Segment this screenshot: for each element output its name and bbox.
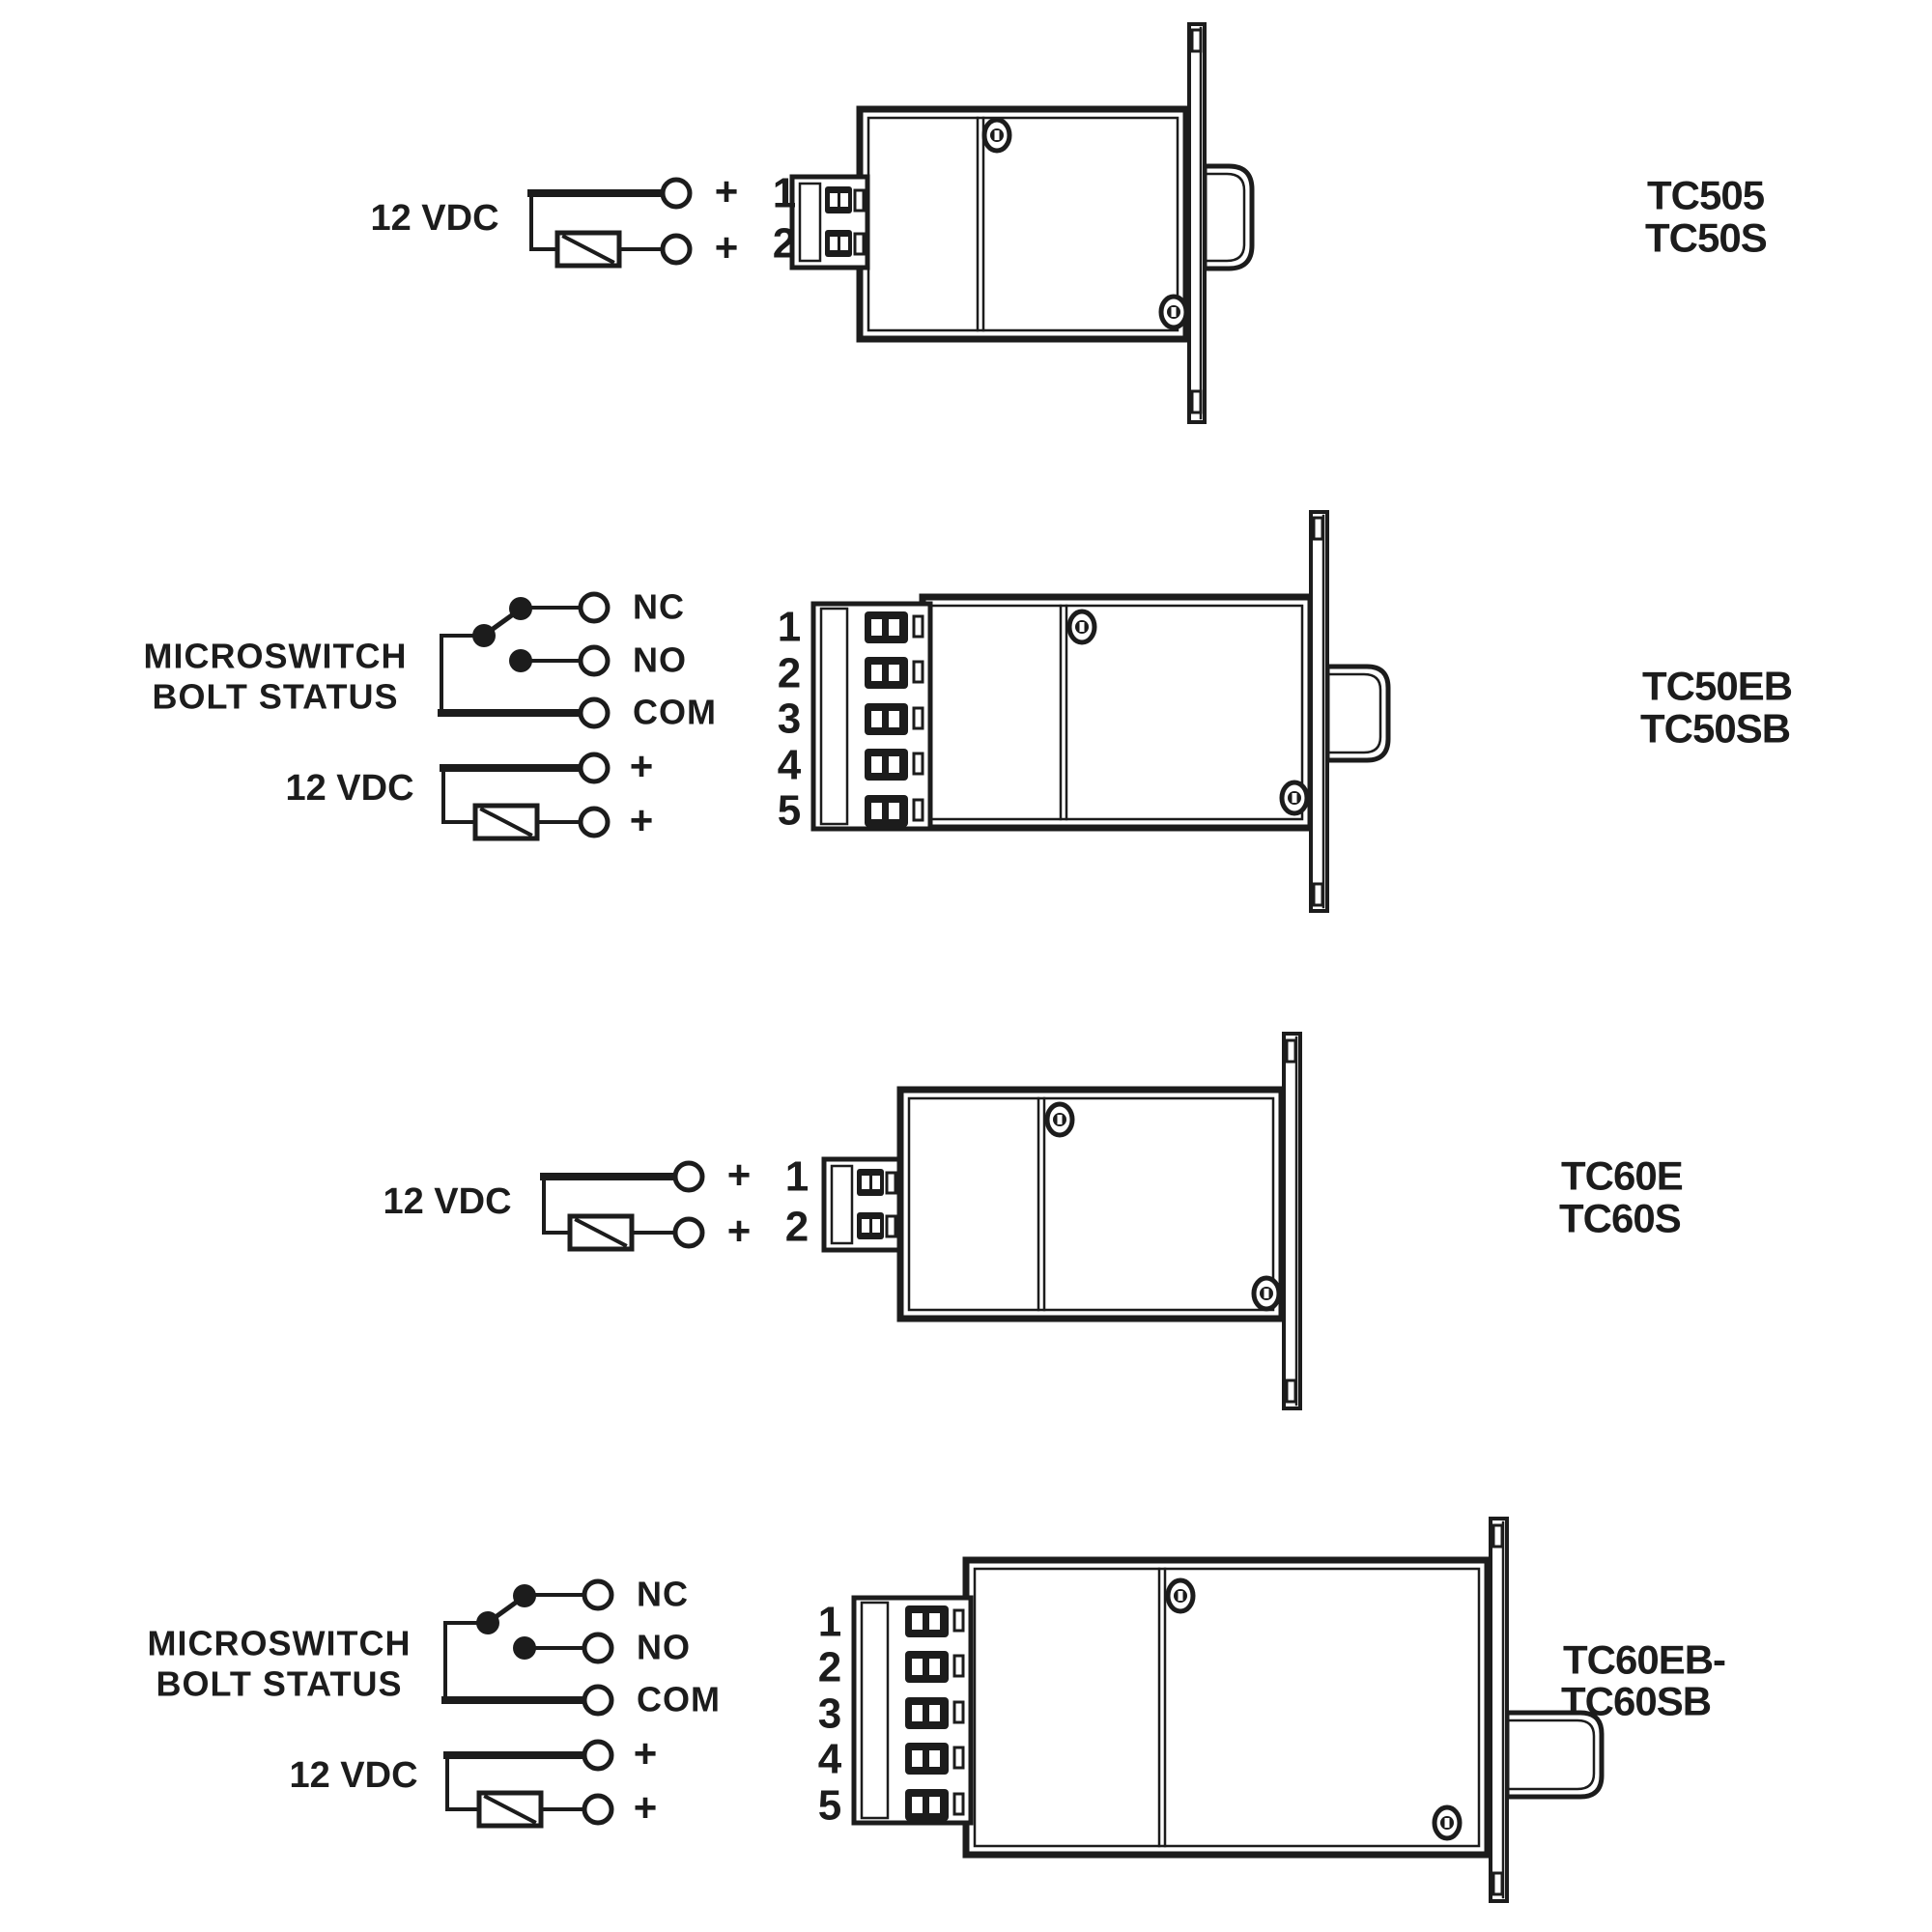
ring-terminal	[584, 1687, 611, 1714]
power-wiring: 12 VDC + + 1 2	[370, 169, 796, 270]
diode-symbol	[557, 233, 619, 266]
ring-terminal	[584, 1581, 611, 1608]
microswitch-wiring: MICROSWITCH BOLT STATUS NC NO COM 12 VDC	[148, 1575, 721, 1831]
screw-icon	[984, 120, 1009, 151]
terminal-number: 1	[773, 170, 796, 217]
mounting-faceplate	[1491, 1519, 1507, 1901]
screw-icon	[1254, 1278, 1279, 1309]
terminal-block	[792, 177, 867, 268]
ring-terminal	[581, 754, 608, 781]
polarity-mark: +	[727, 1152, 752, 1198]
screw-icon	[1161, 297, 1186, 327]
diagram-tc60-bolt-status: 1 2 3 4 5 MICROSWITCH BOLT STATUS NC NO …	[148, 1519, 1726, 1901]
model-label: TC50SB	[1640, 706, 1790, 752]
screw-icon	[1069, 611, 1094, 642]
power-wiring: 12 VDC + + 1 2	[383, 1152, 809, 1254]
lock-device	[966, 1519, 1602, 1901]
polarity-mark: +	[634, 1731, 658, 1776]
switch-terminal-label: NO	[637, 1628, 691, 1667]
switch-terminal-label: COM	[633, 693, 717, 732]
wiring-diagram-sheet: 12 VDC + + 1 2 TC505 TC50S	[0, 0, 1932, 1932]
diagram-tc50-bolt-status: 1 2 3 4 5 MICROSWITCH BOLT STATUS NC NO …	[144, 512, 1793, 911]
polarity-mark: +	[630, 798, 654, 843]
model-labels: TC60E TC60S	[1559, 1153, 1683, 1241]
ring-terminal	[581, 647, 608, 674]
polarity-mark: +	[715, 169, 739, 214]
terminal-number: 1	[785, 1153, 809, 1201]
diode-symbol	[475, 806, 537, 838]
bolt	[1507, 1713, 1602, 1797]
terminal-number: 2	[785, 1204, 809, 1251]
mounting-hole	[1192, 391, 1201, 412]
ring-terminal	[663, 180, 690, 207]
ring-terminal	[663, 236, 690, 263]
model-label: TC60EB-	[1563, 1637, 1725, 1683]
model-labels: TC60EB- TC60SB	[1561, 1637, 1725, 1724]
lock-device	[860, 24, 1252, 422]
mounting-hole	[1493, 1525, 1502, 1547]
bolt-status-label: BOLT STATUS	[156, 1664, 403, 1704]
device-body	[900, 1090, 1282, 1319]
diagram-tc50-standard: 12 VDC + + 1 2 TC505 TC50S	[370, 24, 1766, 422]
ring-terminal	[675, 1219, 702, 1246]
switch-terminal-label: COM	[637, 1680, 721, 1719]
switch-pivot-contact	[472, 624, 496, 647]
terminal-numbers: 1 2 3 4 5	[778, 604, 802, 835]
switch-terminal-label: NC	[633, 587, 685, 627]
terminal-number: 5	[818, 1782, 841, 1830]
bolt-status-label: BOLT STATUS	[153, 677, 399, 717]
polarity-mark: +	[630, 744, 654, 789]
power-voltage-label: 12 VDC	[370, 198, 498, 239]
ring-terminal	[675, 1163, 702, 1190]
diode-symbol	[479, 1793, 541, 1826]
terminal-number: 3	[778, 696, 801, 743]
bolt	[1205, 166, 1252, 269]
ring-terminal	[584, 1634, 611, 1662]
bolt	[1327, 667, 1388, 760]
terminal-number: 2	[778, 650, 801, 697]
mounting-faceplate	[1284, 1034, 1300, 1408]
polarity-mark: +	[634, 1785, 658, 1831]
model-labels: TC50EB TC50SB	[1640, 664, 1792, 752]
terminal-number: 1	[818, 1599, 841, 1646]
ring-terminal	[584, 1742, 611, 1769]
screw-icon	[1047, 1104, 1072, 1135]
model-label: TC50EB	[1642, 664, 1792, 709]
terminal-number: 1	[778, 604, 801, 651]
terminal-block	[854, 1598, 971, 1823]
ring-terminal	[581, 594, 608, 621]
switch-terminal-label: NO	[633, 640, 687, 680]
screw-icon	[1282, 782, 1307, 813]
switch-terminal-label: NC	[637, 1575, 689, 1614]
lock-device	[900, 1034, 1300, 1408]
lock-device	[923, 512, 1388, 911]
switch-pivot-contact	[476, 1611, 499, 1634]
screw-icon	[1168, 1580, 1193, 1611]
power-voltage-label: 12 VDC	[285, 768, 413, 809]
model-label: TC60E	[1561, 1153, 1683, 1199]
model-label: TC60S	[1559, 1196, 1681, 1241]
ring-terminal	[581, 809, 608, 836]
diode-symbol	[570, 1216, 632, 1249]
mounting-hole	[1287, 1380, 1295, 1402]
mounting-faceplate	[1311, 512, 1327, 911]
mounting-hole	[1314, 518, 1322, 539]
terminal-numbers: 1 2 3 4 5	[818, 1599, 842, 1830]
device-body	[923, 597, 1311, 828]
terminal-number: 2	[773, 220, 796, 268]
terminal-number: 4	[778, 742, 802, 789]
ring-terminal	[584, 1796, 611, 1823]
terminal-number: 4	[818, 1736, 842, 1783]
ring-terminal	[581, 699, 608, 726]
mounting-faceplate	[1189, 24, 1205, 422]
diagram-svg: 12 VDC + + 1 2 TC505 TC50S	[0, 0, 1932, 1932]
mounting-hole	[1314, 884, 1322, 905]
device-body	[966, 1560, 1488, 1855]
terminal-block	[824, 1159, 899, 1250]
power-voltage-label: 12 VDC	[289, 1755, 417, 1796]
mounting-hole	[1493, 1873, 1502, 1894]
terminal-number: 5	[778, 787, 801, 835]
mounting-hole	[1287, 1040, 1295, 1062]
terminal-number: 3	[818, 1690, 841, 1738]
model-label: TC60SB	[1561, 1679, 1711, 1724]
mounting-hole	[1192, 30, 1201, 51]
microswitch-wiring: MICROSWITCH BOLT STATUS NC NO COM 12 VDC	[144, 587, 717, 843]
terminal-block	[813, 604, 930, 829]
diagram-tc60-standard: 12 VDC + + 1 2 TC60E TC60S	[383, 1034, 1682, 1408]
screw-icon	[1435, 1807, 1460, 1838]
power-voltage-label: 12 VDC	[383, 1181, 511, 1222]
model-labels: TC505 TC50S	[1645, 173, 1767, 261]
microswitch-label: MICROSWITCH	[144, 637, 408, 676]
device-body	[860, 109, 1186, 339]
polarity-mark: +	[727, 1208, 752, 1254]
polarity-mark: +	[715, 225, 739, 270]
model-label: TC50S	[1645, 215, 1767, 261]
microswitch-label: MICROSWITCH	[148, 1624, 412, 1663]
model-label: TC505	[1647, 173, 1765, 218]
terminal-number: 2	[818, 1644, 841, 1691]
